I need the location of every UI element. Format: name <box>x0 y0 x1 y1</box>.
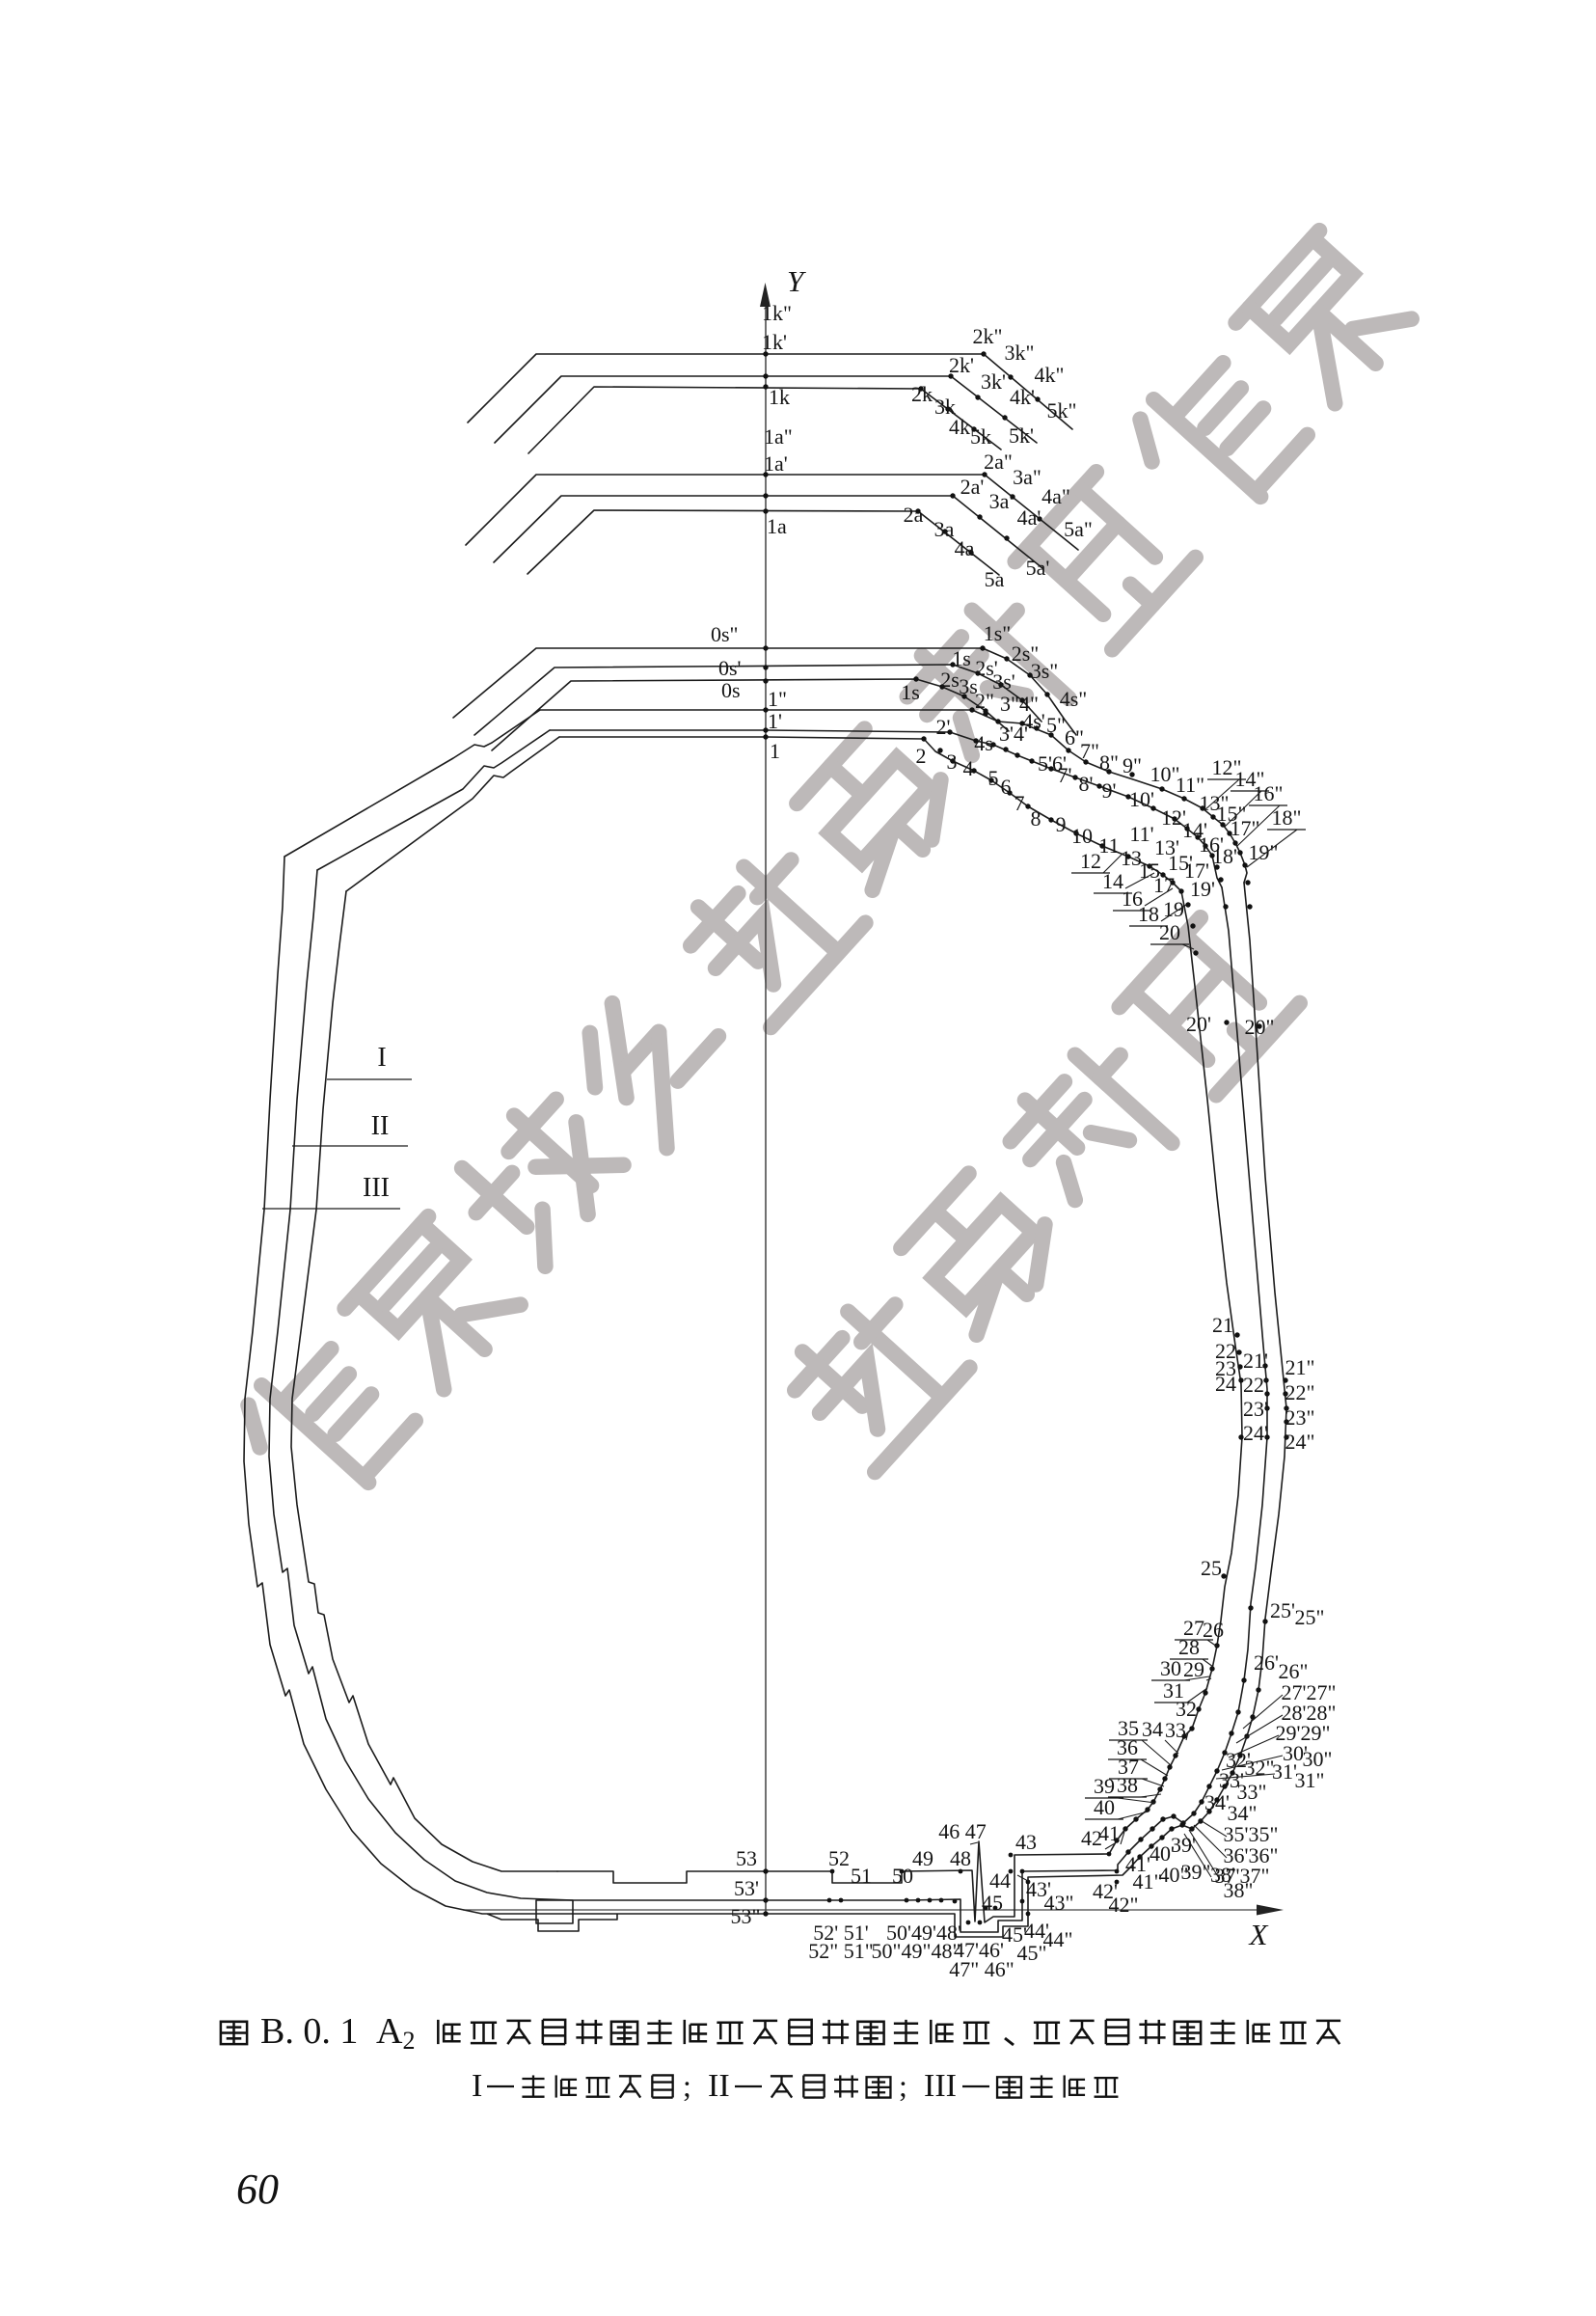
svg-text:21": 21" <box>1285 1355 1315 1379</box>
svg-text:44: 44 <box>989 1868 1011 1893</box>
svg-text:41: 41 <box>1098 1821 1120 1845</box>
svg-text:26': 26' <box>1254 1650 1279 1675</box>
svg-text:16": 16" <box>1254 781 1284 805</box>
svg-text:25": 25" <box>1295 1605 1325 1629</box>
svg-text:12: 12 <box>1080 849 1101 873</box>
svg-text:50"49"48": 50"49"48" <box>872 1939 961 1963</box>
svg-text:4a": 4a" <box>1041 484 1070 508</box>
svg-text:60: 60 <box>236 2166 279 2213</box>
svg-text:0s': 0s' <box>718 656 742 680</box>
svg-text:38: 38 <box>1117 1773 1138 1797</box>
svg-text:2k": 2k" <box>973 324 1003 348</box>
svg-text:34: 34 <box>1142 1717 1163 1741</box>
svg-text:7': 7' <box>1058 763 1072 787</box>
svg-text:24: 24 <box>1215 1372 1236 1396</box>
svg-text:1a': 1a' <box>764 451 788 476</box>
svg-text:20": 20" <box>1245 1015 1275 1039</box>
svg-text:4k': 4k' <box>1010 385 1035 409</box>
svg-text:2k': 2k' <box>949 353 974 377</box>
svg-text:1k': 1k' <box>762 330 787 354</box>
svg-text:50: 50 <box>892 1864 913 1888</box>
svg-text:5a": 5a" <box>1064 517 1093 541</box>
svg-text:;: ; <box>899 2068 907 2103</box>
svg-text:Y: Y <box>787 264 806 298</box>
svg-text:22": 22" <box>1285 1380 1315 1404</box>
svg-text:5a': 5a' <box>1026 556 1050 580</box>
svg-text:4k": 4k" <box>1035 363 1065 387</box>
svg-text:II: II <box>708 2068 730 2104</box>
svg-text:5k: 5k <box>970 424 991 449</box>
svg-text:1: 1 <box>770 739 780 763</box>
svg-text:2': 2' <box>936 715 951 739</box>
svg-text:3k': 3k' <box>981 369 1006 394</box>
svg-text:B. 0. 1: B. 0. 1 <box>260 2011 358 2052</box>
svg-text:30: 30 <box>1160 1656 1181 1680</box>
svg-text:;: ; <box>683 2068 691 2103</box>
svg-text:4: 4 <box>963 756 974 780</box>
svg-text:41": 41" <box>1133 1869 1163 1894</box>
svg-text:1k: 1k <box>769 385 790 409</box>
svg-text:14: 14 <box>1102 869 1123 893</box>
svg-text:4k: 4k <box>949 415 970 439</box>
svg-text:52: 52 <box>828 1846 850 1870</box>
svg-text:3a: 3a <box>934 517 955 541</box>
svg-text:3s": 3s" <box>1031 659 1059 683</box>
svg-text:49: 49 <box>912 1846 933 1870</box>
svg-text:3k": 3k" <box>1005 341 1035 365</box>
svg-text:45": 45" <box>1017 1941 1047 1965</box>
svg-text:1a: 1a <box>767 514 787 538</box>
svg-text:19": 19" <box>1249 840 1279 864</box>
svg-text:2s: 2s <box>940 668 960 692</box>
svg-text:5a: 5a <box>985 567 1005 591</box>
svg-text:II: II <box>371 1111 390 1141</box>
svg-text:21: 21 <box>1212 1313 1233 1337</box>
svg-text:4a: 4a <box>955 536 975 560</box>
svg-text:5k": 5k" <box>1047 398 1077 422</box>
svg-text:53": 53" <box>731 1904 761 1928</box>
svg-text:3"4": 3"4" <box>1000 692 1039 716</box>
svg-text:1k": 1k" <box>762 301 792 325</box>
svg-text:2: 2 <box>916 744 927 768</box>
svg-text:1a": 1a" <box>764 424 793 449</box>
svg-text:19': 19' <box>1190 877 1215 901</box>
svg-text:52" 51": 52" 51" <box>808 1939 873 1963</box>
svg-text:1": 1" <box>768 687 787 711</box>
svg-text:6: 6 <box>1001 775 1012 799</box>
svg-text:53': 53' <box>734 1876 759 1900</box>
svg-text:4s": 4s" <box>1060 687 1088 711</box>
svg-text:42": 42" <box>1109 1893 1139 1917</box>
svg-text:8": 8" <box>1099 750 1119 775</box>
svg-text:44": 44" <box>1043 1927 1073 1951</box>
svg-text:21': 21' <box>1243 1349 1268 1373</box>
svg-text:4a': 4a' <box>1017 505 1041 530</box>
svg-text:33: 33 <box>1165 1718 1186 1742</box>
svg-text:I: I <box>472 2068 482 2104</box>
svg-text:3s': 3s' <box>992 669 1015 694</box>
svg-text:2a: 2a <box>904 503 924 527</box>
svg-text:III: III <box>924 2068 957 2104</box>
svg-text:5: 5 <box>988 766 999 790</box>
svg-text:23': 23' <box>1243 1397 1268 1421</box>
svg-text:0s: 0s <box>721 678 741 702</box>
svg-text:X: X <box>1248 1918 1269 1951</box>
svg-text:47" 46": 47" 46" <box>949 1957 1014 1981</box>
svg-text:23": 23" <box>1285 1405 1315 1430</box>
svg-text:22': 22' <box>1243 1373 1268 1397</box>
svg-text:1s": 1s" <box>984 621 1012 645</box>
svg-text:38": 38" <box>1224 1878 1254 1902</box>
svg-text:5": 5" <box>1046 713 1066 737</box>
svg-text:43": 43" <box>1044 1891 1074 1915</box>
svg-text:7: 7 <box>1014 791 1025 815</box>
svg-text:11': 11' <box>1129 822 1153 846</box>
svg-text:28: 28 <box>1178 1635 1200 1659</box>
svg-text:11: 11 <box>1098 833 1119 858</box>
svg-text:18': 18' <box>1212 844 1237 868</box>
svg-text:25: 25 <box>1201 1556 1222 1580</box>
svg-text:I: I <box>377 1043 386 1073</box>
svg-text:7": 7" <box>1080 739 1099 763</box>
svg-text:31": 31" <box>1295 1768 1325 1792</box>
svg-text:48: 48 <box>950 1846 971 1870</box>
svg-text:43: 43 <box>1015 1830 1037 1854</box>
svg-text:1': 1' <box>768 709 782 733</box>
svg-text:9: 9 <box>1056 812 1067 836</box>
svg-text:10: 10 <box>1071 824 1093 848</box>
svg-text:34': 34' <box>1204 1790 1230 1814</box>
svg-text:40": 40" <box>1159 1863 1189 1887</box>
svg-text:2a": 2a" <box>984 450 1013 474</box>
svg-text:18: 18 <box>1138 902 1159 926</box>
svg-text:31': 31' <box>1272 1759 1297 1784</box>
svg-text:53: 53 <box>736 1846 757 1870</box>
svg-text:9": 9" <box>1123 753 1142 777</box>
svg-text:26: 26 <box>1203 1618 1224 1642</box>
svg-text:3'4': 3'4' <box>999 722 1028 746</box>
svg-text:51: 51 <box>851 1864 872 1888</box>
svg-text:3a': 3a' <box>989 489 1014 513</box>
svg-text:5k': 5k' <box>1009 423 1034 448</box>
svg-text:10': 10' <box>1129 787 1154 811</box>
svg-text:8: 8 <box>1031 806 1041 831</box>
svg-text:20': 20' <box>1186 1012 1211 1036</box>
svg-text:40: 40 <box>1094 1795 1115 1819</box>
svg-text:25': 25' <box>1270 1598 1295 1622</box>
svg-text:46 47: 46 47 <box>938 1819 987 1843</box>
svg-text:24": 24" <box>1285 1430 1315 1454</box>
svg-text:20: 20 <box>1159 920 1180 944</box>
svg-text:24': 24' <box>1243 1421 1268 1445</box>
svg-text:8': 8' <box>1079 772 1094 796</box>
svg-text:2k: 2k <box>911 382 933 406</box>
svg-text:3a": 3a" <box>1013 465 1041 489</box>
svg-text:0s": 0s" <box>711 622 739 646</box>
svg-text:2": 2" <box>975 689 994 713</box>
svg-text:45: 45 <box>982 1891 1003 1915</box>
svg-text:9': 9' <box>1102 778 1117 803</box>
svg-text:3: 3 <box>947 749 958 774</box>
svg-text:III: III <box>363 1173 390 1203</box>
svg-text:1s: 1s <box>901 680 920 704</box>
svg-text:2a': 2a' <box>960 475 985 499</box>
